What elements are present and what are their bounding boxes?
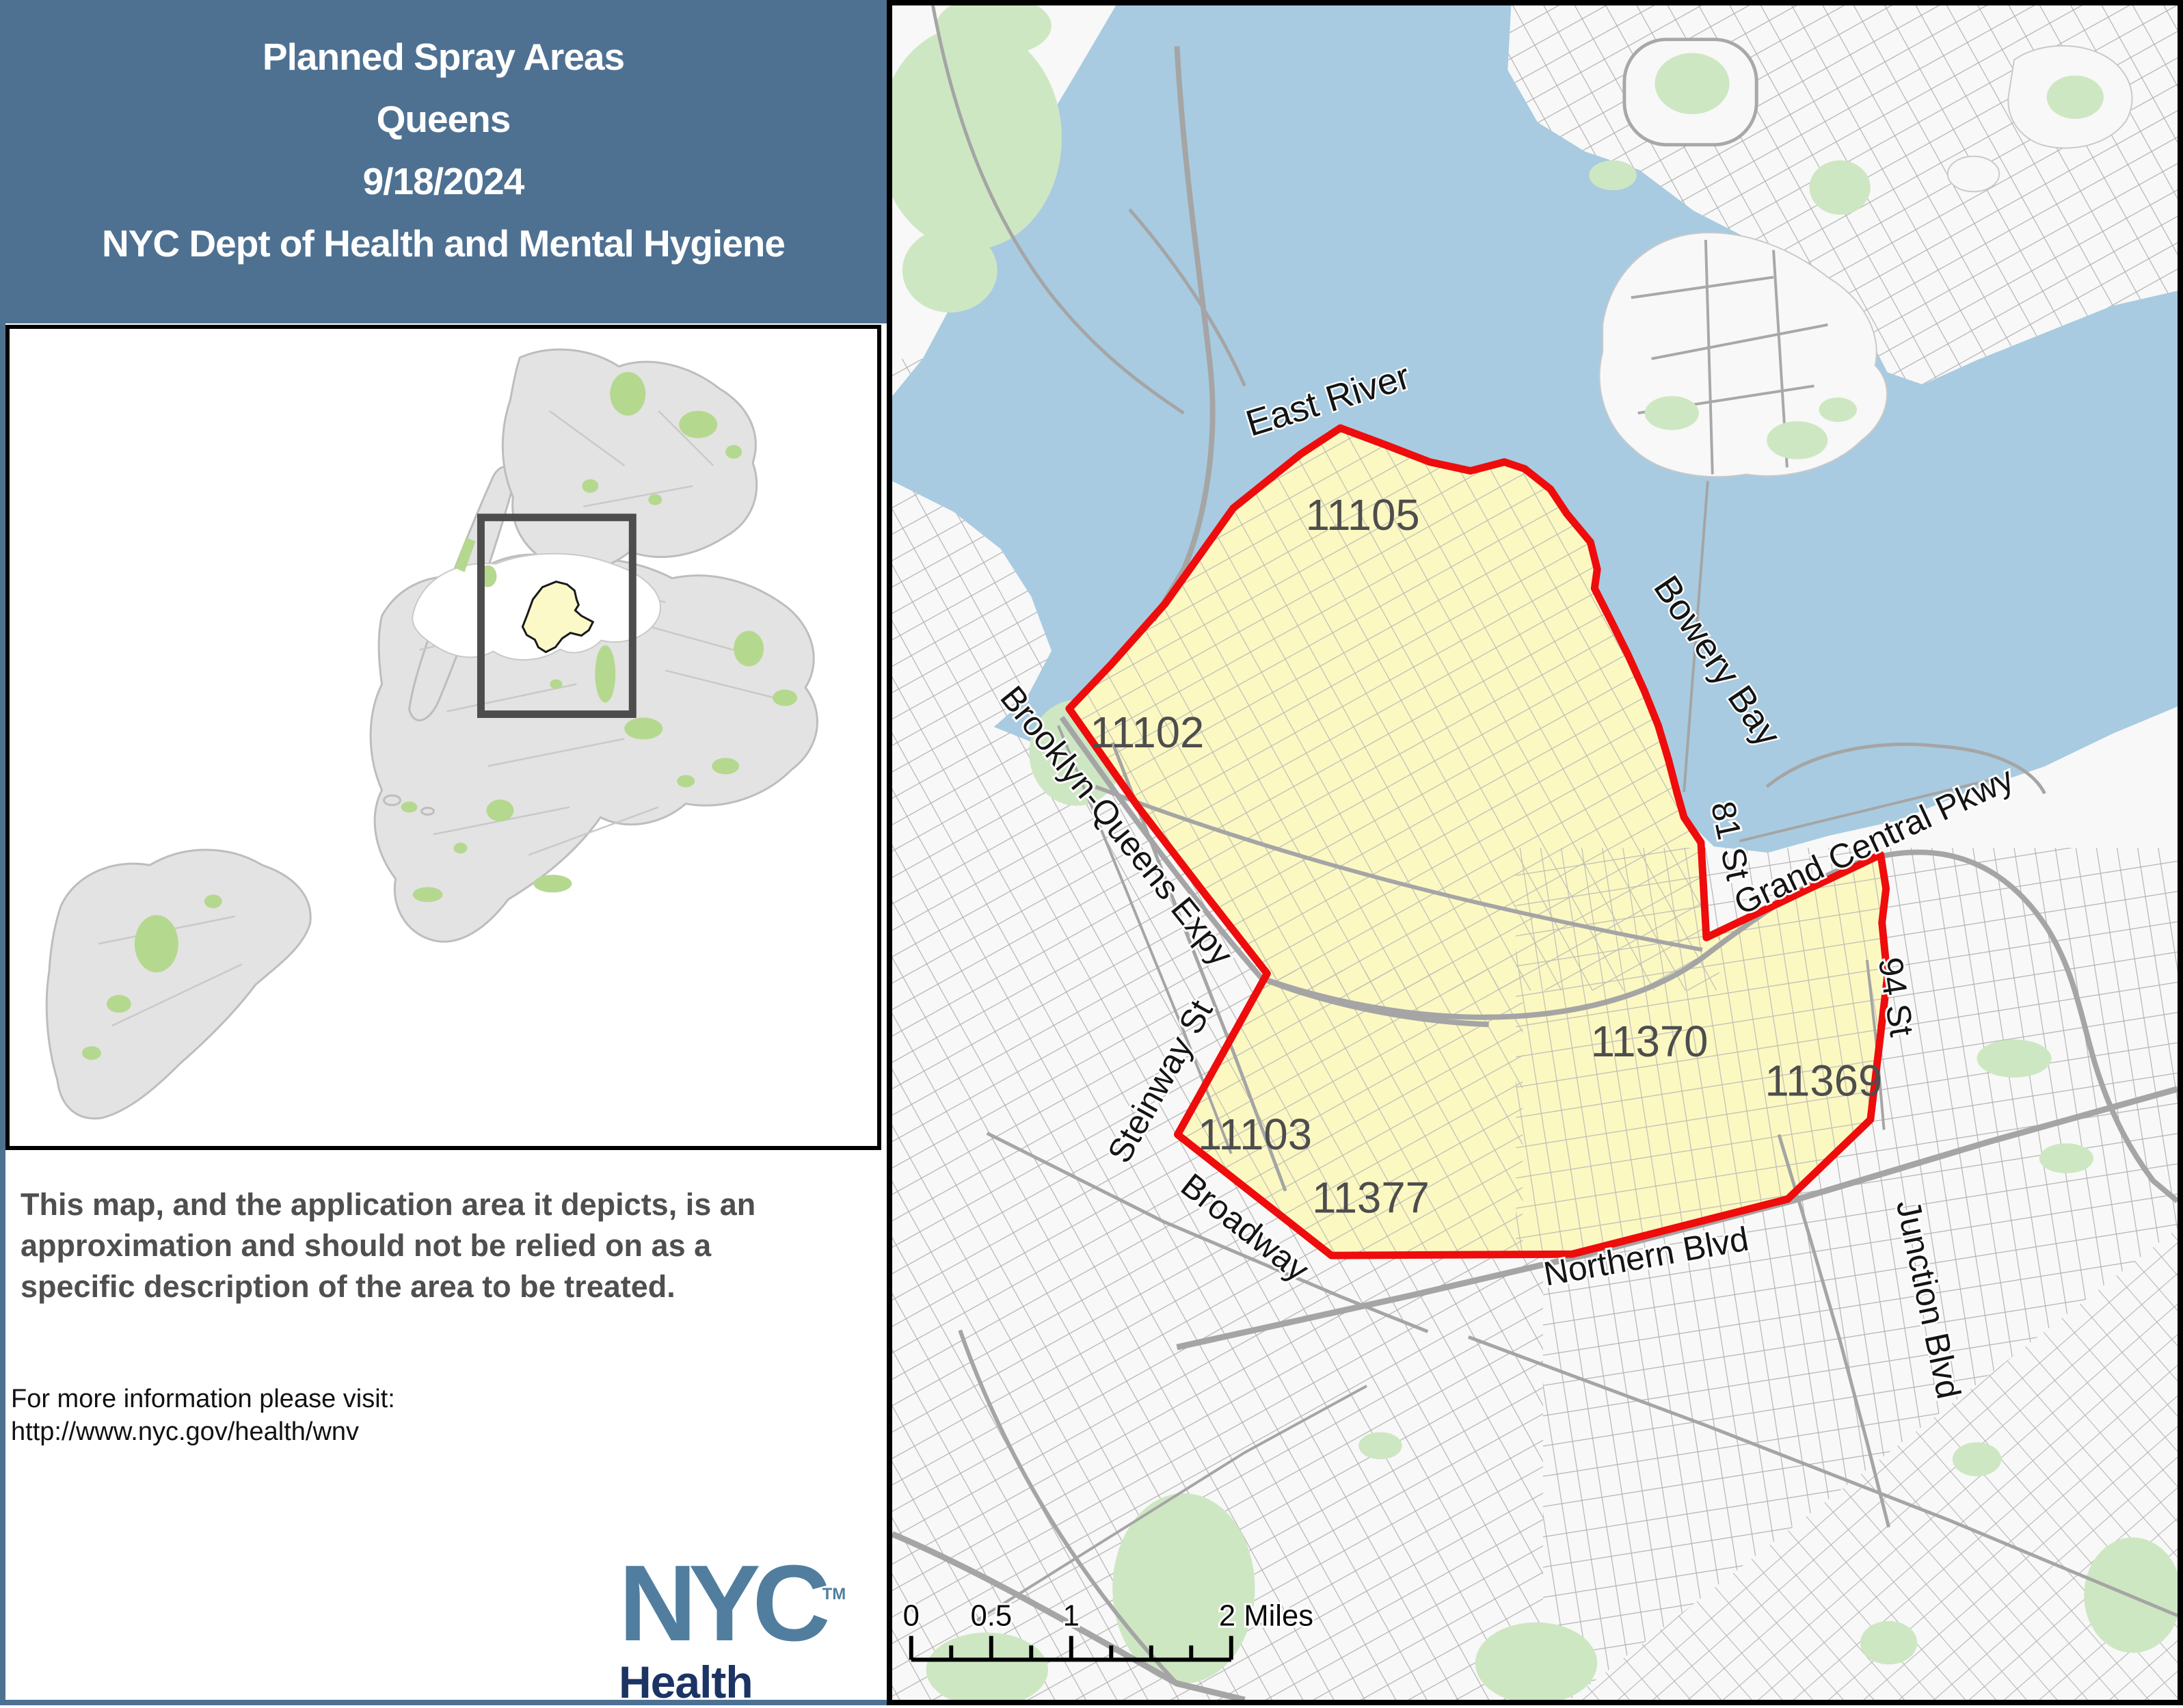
left-panel: Planned Spray Areas Queens 9/18/2024 NYC… xyxy=(0,0,887,1705)
scale-tick-0: 0 xyxy=(903,1599,920,1633)
scale-tick-1: 1 xyxy=(1063,1599,1080,1633)
zip-label-11105: 11105 xyxy=(1306,491,1420,539)
info-url[interactable]: http://www.nyc.gov/health/wnv xyxy=(11,1415,831,1448)
disclaimer-text: This map, and the application area it de… xyxy=(21,1184,824,1307)
agency-title: NYC Dept of Health and Mental Hygiene xyxy=(0,213,887,275)
nyc-locator-inset-map xyxy=(5,325,881,1150)
borough-shapes xyxy=(46,349,817,1119)
zip-label-11369: 11369 xyxy=(1765,1057,1883,1106)
borough-title: Queens xyxy=(0,88,887,150)
title-block: Planned Spray Areas Queens 9/18/2024 NYC… xyxy=(0,0,887,323)
spray-area-map: East River Bowery Bay 11105 11102 11103 … xyxy=(887,0,2183,1705)
nyc-health-logo: NYCTM Health xyxy=(619,1552,879,1708)
zip-label-11377: 11377 xyxy=(1312,1174,1430,1223)
nyc-logo-text: NYC xyxy=(619,1552,822,1655)
date-title: 9/18/2024 xyxy=(0,150,887,213)
page-border-left xyxy=(0,0,5,1705)
zip-label-11102: 11102 xyxy=(1090,708,1204,757)
scale-tick-2-miles: 2 Miles xyxy=(1219,1599,1313,1633)
page-title: Planned Spray Areas xyxy=(0,26,887,88)
scale-tick-05: 0.5 xyxy=(970,1599,1012,1633)
zip-label-11103: 11103 xyxy=(1198,1110,1312,1159)
page-border-bottom xyxy=(0,1700,887,1705)
info-block: For more information please visit: http:… xyxy=(11,1383,831,1448)
trademark-mark: TM xyxy=(822,1585,846,1603)
info-text: For more information please visit: xyxy=(11,1383,831,1415)
zip-label-11370: 11370 xyxy=(1591,1017,1709,1066)
